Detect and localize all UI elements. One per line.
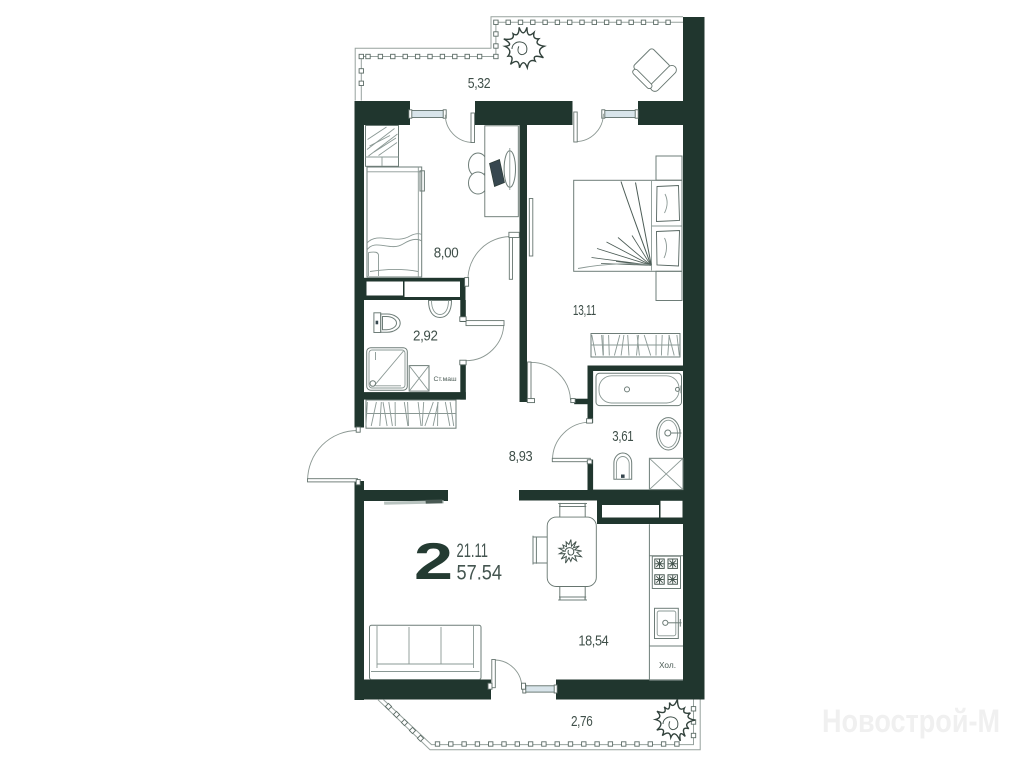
svg-text:18,54: 18,54	[578, 634, 608, 650]
svg-text:5,32: 5,32	[468, 76, 491, 92]
svg-text:Хол.: Хол.	[659, 660, 676, 670]
svg-text:8,93: 8,93	[509, 449, 533, 465]
svg-text:Новострой-М: Новострой-М	[822, 703, 1000, 739]
svg-text:8,00: 8,00	[434, 245, 459, 261]
svg-text:13,11: 13,11	[573, 303, 596, 319]
svg-text:2,76: 2,76	[571, 714, 593, 730]
svg-text:57.54: 57.54	[457, 562, 503, 585]
svg-text:2: 2	[414, 533, 453, 591]
svg-text:Ст.маш: Ст.маш	[433, 376, 456, 383]
svg-text:21.11: 21.11	[457, 540, 489, 562]
svg-text:3,61: 3,61	[612, 429, 633, 445]
svg-text:2,92: 2,92	[413, 329, 438, 345]
